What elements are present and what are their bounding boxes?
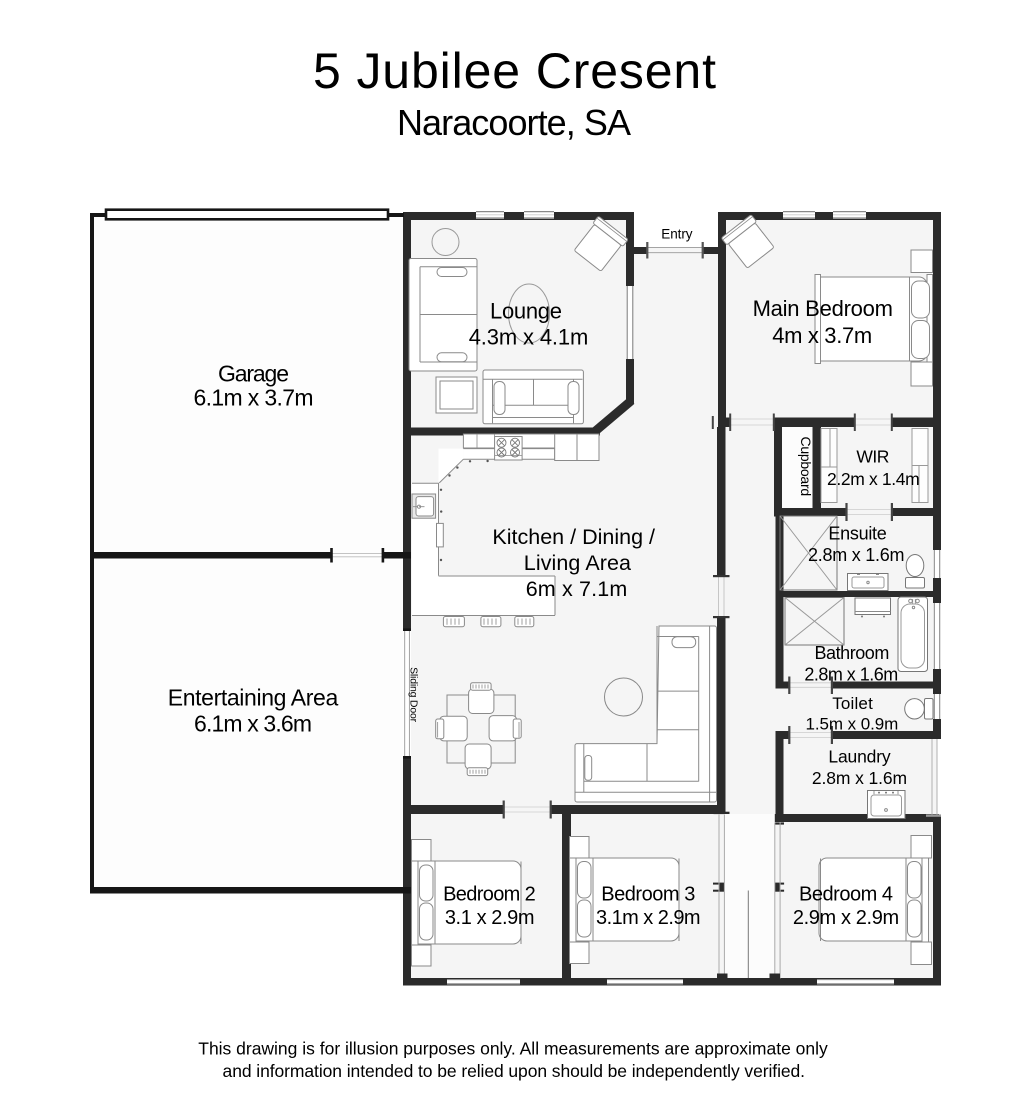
- svg-text:4m x 3.7m: 4m x 3.7m: [772, 323, 872, 348]
- svg-text:Bedroom 4: Bedroom 4: [799, 884, 893, 906]
- svg-text:Bathroom: Bathroom: [814, 643, 889, 663]
- svg-text:3.1m x 2.9m: 3.1m x 2.9m: [596, 907, 701, 929]
- svg-text:and information intended to be: and information intended to be relied up…: [223, 1061, 806, 1081]
- svg-text:2.8m x 1.6m: 2.8m x 1.6m: [808, 545, 905, 565]
- svg-text:Garage: Garage: [218, 361, 289, 387]
- svg-text:Main Bedroom: Main Bedroom: [753, 296, 893, 321]
- svg-text:Living Area: Living Area: [524, 551, 631, 575]
- svg-text:6m x 7.1m: 6m x 7.1m: [526, 577, 628, 601]
- svg-text:Kitchen / Dining /: Kitchen / Dining /: [492, 525, 655, 549]
- svg-text:5 Jubilee Cresent: 5 Jubilee Cresent: [313, 43, 716, 99]
- svg-text:Ensuite: Ensuite: [828, 523, 886, 543]
- svg-text:2.2m x 1.4m: 2.2m x 1.4m: [827, 469, 920, 489]
- svg-text:4.3m x 4.1m: 4.3m x 4.1m: [469, 325, 589, 350]
- svg-text:Laundry: Laundry: [828, 747, 890, 767]
- svg-text:Bedroom 3: Bedroom 3: [601, 884, 695, 906]
- svg-text:6.1m x 3.7m: 6.1m x 3.7m: [194, 385, 314, 411]
- svg-text:Cupboard: Cupboard: [798, 436, 814, 496]
- svg-text:2.8m x 1.6m: 2.8m x 1.6m: [804, 665, 898, 685]
- svg-text:1.5m x 0.9m: 1.5m x 0.9m: [806, 715, 899, 734]
- svg-text:This drawing is for illusion p: This drawing is for illusion purposes on…: [198, 1039, 828, 1059]
- svg-text:Bedroom 2: Bedroom 2: [443, 884, 536, 906]
- svg-text:Naracoorte, SA: Naracoorte, SA: [397, 102, 631, 143]
- svg-text:Entertaining Area: Entertaining Area: [168, 685, 339, 711]
- svg-text:Lounge: Lounge: [490, 299, 562, 324]
- svg-text:WIR: WIR: [856, 447, 889, 467]
- svg-text:Sliding Door: Sliding Door: [408, 667, 420, 723]
- svg-text:2.9m x 2.9m: 2.9m x 2.9m: [793, 907, 899, 929]
- svg-text:Toilet: Toilet: [832, 694, 873, 713]
- svg-text:2.8m x 1.6m: 2.8m x 1.6m: [812, 768, 907, 788]
- svg-text:6.1m x 3.6m: 6.1m x 3.6m: [194, 711, 312, 737]
- svg-text:3.1 x 2.9m: 3.1 x 2.9m: [445, 907, 535, 929]
- svg-text:Entry: Entry: [661, 227, 692, 242]
